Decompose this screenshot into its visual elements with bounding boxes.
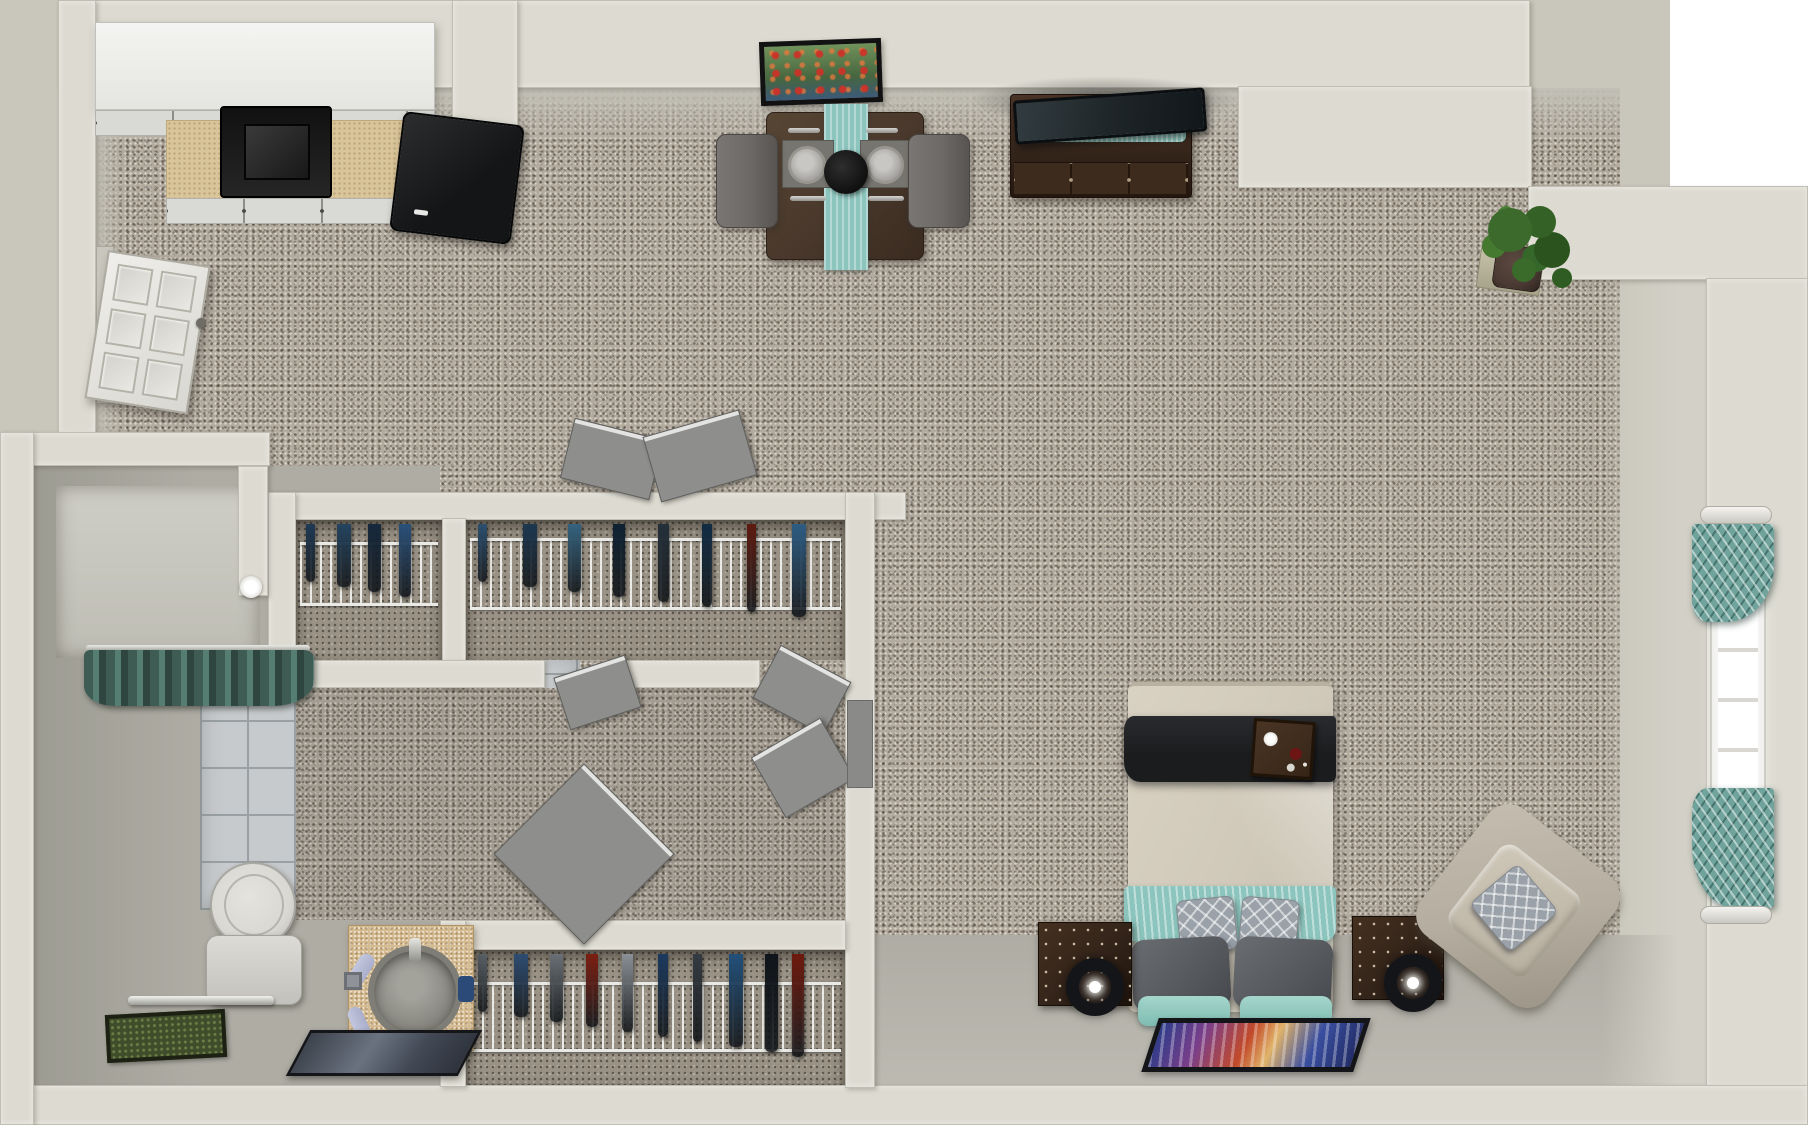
canvas-notch-top-right: [1670, 0, 1808, 186]
table-lamp-left: [1066, 958, 1124, 1016]
dining-chair-right: [908, 134, 970, 228]
hanging-garment: [586, 954, 598, 1027]
door-panel: [156, 271, 197, 313]
hanging-garment: [765, 954, 778, 1052]
table-lamp-right: [1384, 954, 1442, 1012]
door-panel: [142, 359, 183, 401]
hanging-garment: [550, 954, 563, 1022]
floor-plan-render: [0, 0, 1808, 1125]
vanity-mirror: [286, 1030, 482, 1076]
door-knob: [196, 318, 206, 328]
wall-face-right: [1602, 278, 1712, 1087]
towel-bar: [128, 996, 274, 1005]
dinner-plate: [788, 146, 826, 184]
wall-jog-right: [1528, 186, 1808, 280]
hanging-garment: [792, 954, 804, 1057]
refrigerator: [389, 111, 525, 245]
hanging-garment: [368, 524, 381, 592]
bath-rug: [105, 1009, 227, 1063]
breakfast-tray: [1250, 718, 1316, 780]
hanging-garment: [306, 524, 315, 582]
utensil: [866, 128, 898, 133]
dining-chair-left: [716, 134, 778, 228]
hanging-garment: [622, 954, 633, 1032]
vanity-accessory: [458, 976, 474, 1002]
door-panel: [98, 352, 139, 394]
hanging-garment: [613, 524, 625, 597]
hanging-garment: [478, 524, 487, 582]
utensil: [790, 196, 826, 201]
fruit-bowl: [824, 150, 868, 194]
second-closet-wall-top: [440, 920, 846, 950]
outer-wall-bottom: [0, 1085, 1808, 1125]
bathroom-wing-wall: [0, 432, 270, 466]
hanging-garment: [478, 954, 487, 1012]
utensil: [868, 196, 904, 201]
hanging-garment: [658, 524, 669, 602]
hanging-garment: [693, 954, 702, 1042]
bedroom-door-ajar: [847, 700, 873, 788]
tv-stand-drawers: [1014, 162, 1188, 194]
curtain-rod-top: [1700, 506, 1772, 524]
window-glass: [1718, 598, 1758, 798]
sink-faucet: [409, 938, 421, 962]
shower-head: [240, 576, 262, 598]
closet-wall-bottom-b: [615, 660, 760, 688]
hanging-garment: [702, 524, 712, 607]
clothes-rack-second-closet: [474, 952, 837, 1078]
toilet-tank: [206, 935, 302, 1005]
clothes-rack-walk-in-closet: [474, 522, 839, 650]
curtain-rod-bottom: [1700, 906, 1772, 924]
hanging-garment: [523, 524, 537, 587]
closet-wall-right: [845, 492, 875, 1088]
door-panel: [105, 308, 146, 350]
curtain-bottom: [1692, 788, 1774, 908]
hanging-garment: [337, 524, 351, 587]
utensil: [788, 128, 820, 133]
kitchen-upper-cabinets: [95, 22, 435, 110]
toilet-lid-ring: [224, 874, 284, 936]
potted-plant: [1488, 208, 1532, 252]
shower-curtain: [84, 650, 314, 706]
kitchen-lower-cabinets: [166, 198, 416, 224]
door-panel: [149, 315, 190, 357]
hanging-garment: [658, 954, 668, 1037]
outer-wall-left-lower: [0, 432, 34, 1125]
door-panel: [112, 264, 153, 306]
wall-art-flowers: [759, 38, 883, 106]
clothes-rack-small-closet: [302, 522, 436, 642]
stove-window: [244, 124, 310, 180]
hanging-garment: [568, 524, 581, 592]
hanging-garment: [792, 524, 806, 617]
hanging-garment: [729, 954, 743, 1047]
hanging-garment: [514, 954, 528, 1017]
hanging-garment: [399, 524, 411, 597]
bedroom-area-rug: [1141, 1018, 1371, 1072]
closet-wall-top: [268, 492, 906, 520]
shower-stall: [56, 486, 260, 658]
soap-dish: [344, 972, 362, 990]
wall-jog-upper-right: [1238, 86, 1532, 188]
dinner-plate: [866, 146, 904, 184]
hanging-garment: [747, 524, 756, 612]
